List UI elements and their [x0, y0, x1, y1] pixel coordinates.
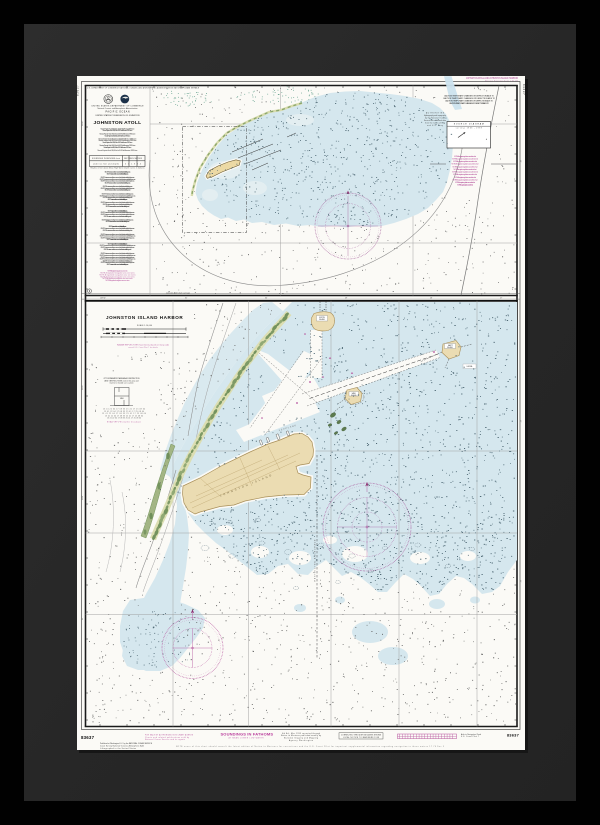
svg-text:6 1 1.8 3.6: 6 1 1.8 3.6	[125, 163, 141, 165]
svg-text:83637: 83637	[81, 735, 95, 740]
svg-text:NOTE A navigation regulations: NOTE A navigation regulations area refer…	[453, 160, 478, 163]
svg-text:NOTE A navigation regulations: NOTE A navigation regulations area refer…	[452, 163, 480, 166]
svg-text:UNITED STATES POSSESSION OF JO: UNITED STATES POSSESSION OF JOHNSTON	[96, 114, 141, 117]
svg-text:LOCAL NOTICE TO MARINERS 1998: LOCAL NOTICE TO MARINERS 1998	[343, 736, 379, 739]
svg-text:NOTE A navigation regulations: NOTE A navigation regulations area refer…	[454, 176, 477, 179]
svg-text:13 41 22 64 17 08 33 25 41 17: 13 41 22 64 17 08 33 25 41 17 25 08 64	[107, 418, 141, 420]
svg-text:Mercator Projection Scale 1:80: Mercator Projection Scale 1:80,000 at La…	[103, 141, 134, 144]
svg-text:AT MEAN LOWER LOW WATER: AT MEAN LOWER LOW WATER	[229, 736, 265, 739]
svg-text:83637: 83637	[76, 85, 80, 96]
svg-text:13 41 22 64 17 08 33 25 41 17: 13 41 22 64 17 08 33 25 41 17 25 08 64	[104, 411, 144, 413]
svg-text:NOTE A navigation regulations: NOTE A navigation regulations area refer…	[452, 157, 479, 160]
svg-text:JOHNSTON ISLAND HARBOR: JOHNSTON ISLAND HARBOR	[106, 315, 183, 320]
svg-text:PACIFIC OCEAN: PACIFIC OCEAN	[106, 111, 130, 114]
svg-text:CAUTION TEMPORARY CHANGES OR D: CAUTION TEMPORARY CHANGES OR DEFECTS IN …	[449, 102, 490, 105]
svg-text:RADAR REFLECTORS have been pla: RADAR REFLECTORS have been placed on man…	[117, 343, 169, 346]
svg-text:16°48': 16°48'	[82, 121, 84, 126]
svg-text:NOTE A navigation regulations: NOTE A navigation regulations area refer…	[452, 171, 479, 174]
svg-text:16°45': 16°45'	[82, 385, 84, 390]
svg-text:NORTH: NORTH	[319, 317, 325, 319]
svg-text:NOTE A navigation regulations: NOTE A navigation regulations area refer…	[455, 181, 476, 184]
svg-text:Lithographed in the United Sta: Lithographed in the United States	[100, 747, 136, 750]
svg-text:mariners should use caution: mariners should use caution	[110, 382, 134, 385]
svg-text:NOTE A navigation regulations: NOTE A navigation regulations area refer…	[454, 168, 478, 171]
svg-text:NOTE A navigation regulations: NOTE A navigation regulations area refer…	[454, 155, 477, 158]
svg-text:National Ocean Service and its: National Ocean Service and its agents	[145, 738, 185, 741]
svg-text:NOTE A navigation regulations: NOTE A navigation regulations area refer…	[453, 165, 479, 168]
svg-text:National Oceanic and Atmospher: National Oceanic and Atmospheric Adminis…	[98, 107, 138, 110]
svg-text:Agency Washington: Agency Washington	[289, 739, 313, 742]
svg-text:NOTE A navigation regulations: NOTE A navigation regulations area refer…	[453, 173, 478, 176]
svg-text:Mercator Projection Scale 1:80: Mercator Projection Scale 1:80,000 at La…	[103, 129, 134, 132]
svg-text:SOUNDINGS IN FATHOMS: SOUNDINGS IN FATHOMS	[221, 731, 274, 736]
svg-text:NOTE A navigation regulations: NOTE A navigation regulations area refer…	[457, 184, 474, 187]
svg-text:NOTE users of this chart shoul: NOTE users of this chart should consult …	[176, 745, 444, 748]
svg-text:JOHNSTON ATOLL: JOHNSTON ATOLL	[94, 120, 142, 126]
svg-text:83637: 83637	[507, 733, 520, 738]
svg-text:Mercator Projection Scale 1:80: Mercator Projection Scale 1:80,000 at La…	[104, 134, 131, 137]
svg-text:HIKINA: HIKINA	[467, 365, 474, 368]
svg-text:13 41 22 64 17 08 33 25 41 17: 13 41 22 64 17 08 33 25 41 17 25 08 64	[102, 413, 146, 415]
svg-text:13 41 22 64 17 08 33 25 41 17: 13 41 22 64 17 08 33 25 41 17 25 08 64	[103, 409, 145, 411]
svg-text:UNITED STATES DEPARTMENT OF C: UNITED STATES DEPARTMENT OF COMMERCE	[92, 104, 145, 107]
svg-text:JOHNSTON ATOLL AND JOHNSTON IS: JOHNSTON ATOLL AND JOHNSTON ISLAND HARBO…	[466, 77, 518, 80]
svg-text:NOTE A navigation regulations: NOTE A navigation regulations area refer…	[453, 178, 479, 181]
svg-text:169°32': 169°32'	[100, 298, 106, 300]
svg-text:and U.S. Navy: and U.S. Navy	[427, 125, 443, 127]
svg-text:44'30": 44'30"	[82, 495, 84, 500]
svg-text:13 41 22 64 17 08 33 25 41 17: 13 41 22 64 17 08 33 25 41 17 25 08 64	[105, 415, 143, 417]
svg-text:83637: 83637	[522, 84, 526, 95]
svg-text:SOURCE DIAGRAM: SOURCE DIAGRAM	[454, 122, 484, 125]
svg-text:RESTRICTED ANCHORAGE: RESTRICTED ANCHORAGE	[313, 539, 316, 582]
svg-text:Johnston Atoll chart coverage: Johnston Atoll chart coverage	[166, 292, 190, 295]
svg-text:SCALE 1:10,000: SCALE 1:10,000	[137, 324, 152, 327]
svg-text:Mercator Projection Scale 1:80: Mercator Projection Scale 1:80,000 at La…	[104, 146, 133, 149]
